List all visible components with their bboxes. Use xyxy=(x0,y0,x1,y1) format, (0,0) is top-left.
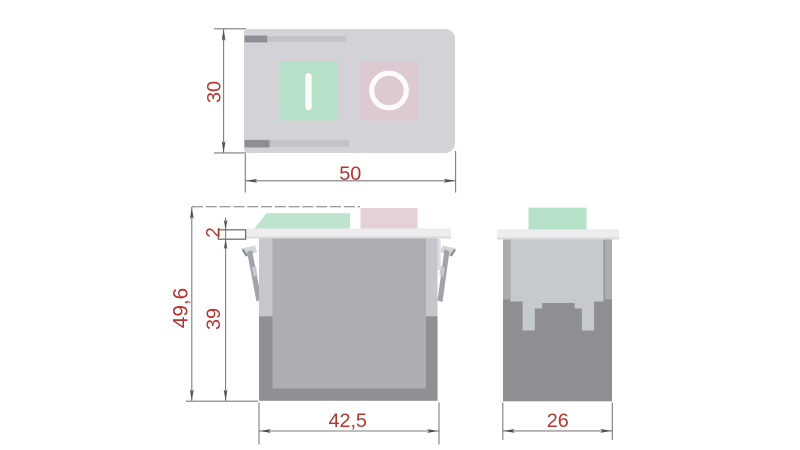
svg-text:49,6: 49,6 xyxy=(170,288,193,328)
svg-text:2: 2 xyxy=(203,227,224,238)
svg-text:42,5: 42,5 xyxy=(328,410,367,432)
svg-text:39: 39 xyxy=(203,308,225,330)
svg-text:50: 50 xyxy=(339,163,361,185)
svg-text:30: 30 xyxy=(204,81,226,103)
svg-text:26: 26 xyxy=(547,410,569,432)
